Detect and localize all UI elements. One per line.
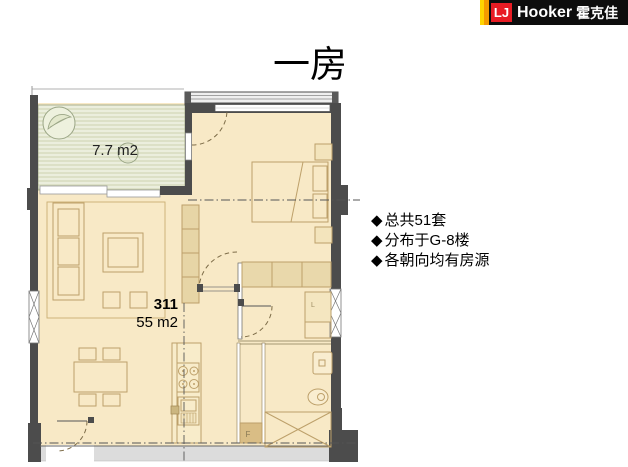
tv-cabinet xyxy=(182,205,199,303)
balcony: 7.7 m2 xyxy=(32,86,192,197)
corridor xyxy=(40,445,332,462)
fridge xyxy=(240,423,262,443)
kitchen-counter xyxy=(172,343,201,443)
window-left xyxy=(29,291,39,343)
nightstand xyxy=(315,227,332,243)
balcony-area-label: 7.7 m2 xyxy=(92,142,138,159)
kitchen xyxy=(171,343,201,443)
wardrobe xyxy=(242,262,331,287)
closet-label: L xyxy=(311,302,315,309)
divider-window xyxy=(186,133,192,160)
unit-number-label: 311 xyxy=(154,296,178,313)
window-right xyxy=(330,289,341,337)
toilet xyxy=(308,389,328,405)
bathroom-sink xyxy=(313,352,332,374)
floorplan: 7.7 m2 xyxy=(0,0,628,467)
nightstand xyxy=(315,144,332,160)
unit-area-label: 55 m2 xyxy=(136,314,178,331)
sofa xyxy=(53,203,84,300)
fridge-label: F xyxy=(246,430,251,439)
